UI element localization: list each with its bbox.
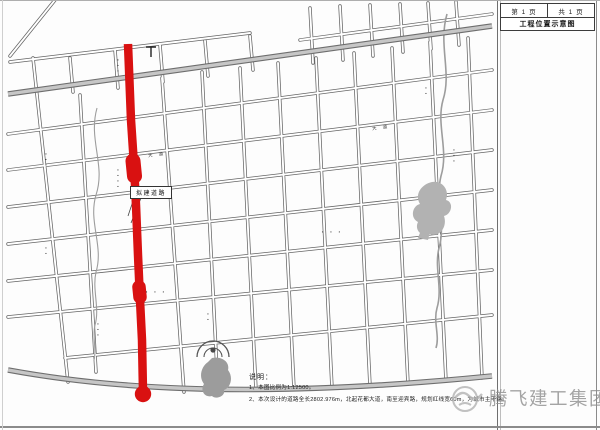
proposed-road-terminus <box>135 386 151 402</box>
sheet-title: 工程位置示意图 <box>501 18 594 30</box>
micro-label: ▪▪ <box>44 246 48 257</box>
micro-label: ▪▪▪▪ <box>116 168 120 190</box>
micro-label: ▪▪ <box>206 312 210 323</box>
micro-label: ▪▪ <box>424 86 428 97</box>
micro-label: ▪ ▪ ▪ <box>146 290 167 294</box>
page-top-edge <box>0 0 600 1</box>
sheet-border-left-inner <box>500 0 501 430</box>
page-left-edge <box>2 0 3 430</box>
sheet-border-right <box>596 0 597 430</box>
micro-label: ▪▪▪ <box>44 152 48 169</box>
location-map-canvas <box>0 0 497 430</box>
micro-label: ▪▪▪ <box>452 148 456 165</box>
title-block: 第 1 页 共 1 页 工程位置示意图 <box>500 3 595 31</box>
micro-label: ▪▪▪ <box>116 58 120 75</box>
proposed-road-node-2 <box>139 287 140 297</box>
roundabout-center-dot <box>210 347 215 352</box>
micro-label: ▪▪▪ <box>96 322 100 339</box>
proposed-road-red <box>128 44 143 392</box>
notes-heading: 说明： <box>249 373 489 382</box>
proposed-road-node-1 <box>133 161 135 176</box>
company-watermark: 腾飞建工集团 <box>450 382 600 414</box>
watermark-text: 腾飞建工集团 <box>489 385 600 411</box>
scanned-drawing-page: 拟建道路 大 道 大 道 ▪▪▪ ▪▪▪▪ ▪▪▪ ▪▪ ▪ ▪ ▪ ▪ ▪ ▪… <box>0 0 600 430</box>
proposed-road-label: 拟建道路 <box>130 186 172 199</box>
sheet-border-left <box>497 0 498 430</box>
company-logo-icon <box>450 382 486 414</box>
title-block-page-row: 第 1 页 共 1 页 <box>501 4 594 18</box>
total-pages-cell: 共 1 页 <box>547 4 594 17</box>
page-bottom-edge <box>0 426 600 428</box>
page-number-cell: 第 1 页 <box>501 4 547 17</box>
park-blob-east <box>413 182 451 235</box>
road-start-tick <box>146 47 156 57</box>
micro-label: ▪ ▪ ▪ <box>322 230 343 234</box>
